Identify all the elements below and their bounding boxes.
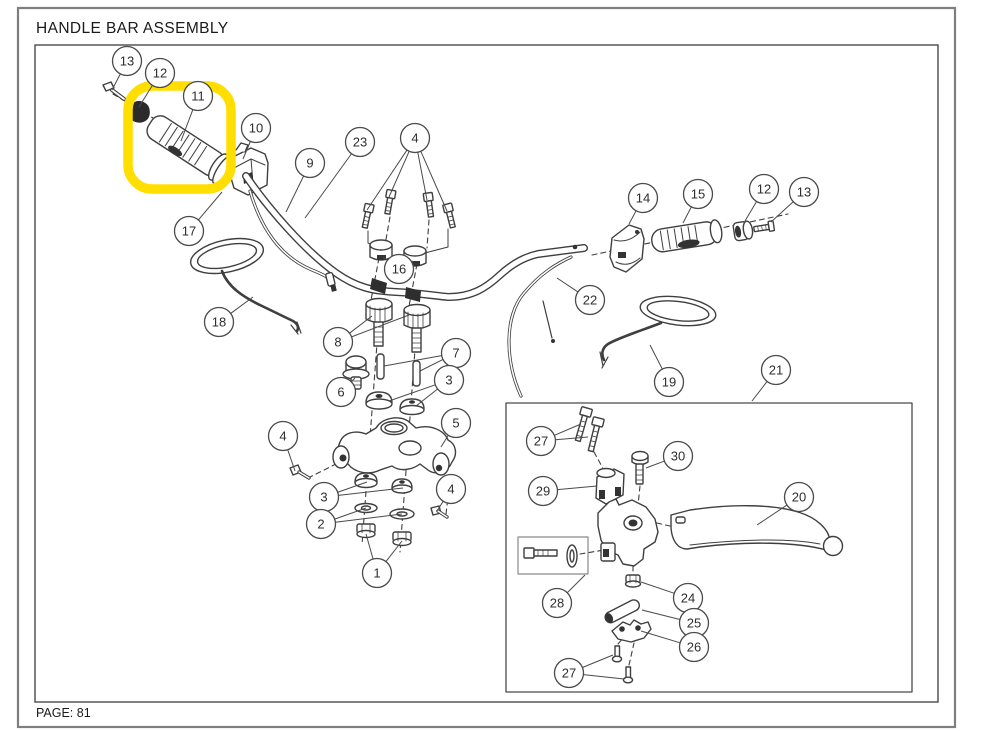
left-end-screw-part bbox=[103, 82, 124, 99]
svg-text:27: 27 bbox=[534, 434, 548, 449]
svg-text:12: 12 bbox=[757, 182, 771, 197]
callout-leader-line bbox=[198, 192, 222, 220]
callout-2[interactable]: 2 bbox=[307, 510, 336, 539]
callout-20[interactable]: 20 bbox=[785, 483, 814, 512]
callout-leader-line bbox=[335, 508, 366, 519]
callout-15[interactable]: 15 bbox=[684, 180, 713, 209]
callout-3[interactable]: 3 bbox=[310, 483, 339, 512]
washers bbox=[355, 504, 414, 520]
svg-text:29: 29 bbox=[536, 484, 550, 499]
callout-layer: 1312111092341617188763543241141512132219… bbox=[112, 47, 819, 688]
callout-12[interactable]: 12 bbox=[750, 175, 779, 204]
svg-text:10: 10 bbox=[249, 121, 263, 136]
callout-leader-line bbox=[683, 207, 691, 223]
callout-leader-line bbox=[771, 202, 793, 222]
svg-text:21: 21 bbox=[769, 363, 783, 378]
callout-leader-line bbox=[286, 176, 304, 212]
right-switch-housing-part bbox=[610, 225, 644, 272]
callout-1[interactable]: 1 bbox=[363, 559, 392, 588]
svg-text:4: 4 bbox=[279, 429, 286, 444]
svg-text:6: 6 bbox=[337, 385, 344, 400]
svg-text:4: 4 bbox=[411, 131, 418, 146]
callout-leader-line bbox=[231, 297, 253, 313]
svg-text:5: 5 bbox=[452, 416, 459, 431]
svg-text:15: 15 bbox=[691, 187, 705, 202]
callout-leader-line bbox=[567, 575, 585, 593]
right-grip-part bbox=[650, 219, 723, 253]
callout-16[interactable]: 16 bbox=[385, 255, 414, 284]
callout-13[interactable]: 13 bbox=[790, 178, 819, 207]
callout-leader-line bbox=[646, 461, 664, 468]
callout-leader-line bbox=[641, 631, 680, 643]
callout-leader-line bbox=[752, 381, 767, 401]
svg-text:17: 17 bbox=[182, 224, 196, 239]
svg-text:20: 20 bbox=[792, 490, 806, 505]
pivot-nut bbox=[626, 575, 641, 587]
callout-leader-line bbox=[418, 152, 427, 200]
clutch-cable-part bbox=[509, 257, 571, 396]
holder-bolts-top bbox=[573, 407, 605, 453]
right-mirror-part bbox=[600, 292, 717, 368]
svg-text:24: 24 bbox=[681, 591, 695, 606]
page-title: HANDLE BAR ASSEMBLY bbox=[36, 20, 229, 37]
svg-text:30: 30 bbox=[671, 449, 685, 464]
svg-text:4: 4 bbox=[447, 482, 454, 497]
callout-leader-line bbox=[557, 486, 597, 490]
brake-lever-part bbox=[671, 506, 843, 556]
callout-21[interactable]: 21 bbox=[762, 356, 791, 385]
callout-29[interactable]: 29 bbox=[529, 477, 558, 506]
callout-7[interactable]: 7 bbox=[442, 339, 471, 368]
callout-leader-line bbox=[416, 389, 438, 406]
callout-leader-line bbox=[557, 278, 578, 292]
diagram-svg: HANDLE BAR ASSEMBLY PAGE: 81 bbox=[0, 0, 982, 731]
grip-tape-band bbox=[405, 287, 421, 302]
callout-leader-line bbox=[650, 345, 662, 369]
callout-6[interactable]: 6 bbox=[327, 378, 356, 407]
upper-holder-bracket bbox=[333, 418, 455, 475]
callout-leader-line bbox=[583, 675, 624, 679]
svg-text:9: 9 bbox=[306, 156, 313, 171]
right-end-cap-part bbox=[733, 220, 754, 241]
control-cable-part bbox=[250, 191, 337, 292]
rubber-mounts-upper bbox=[366, 392, 424, 415]
pins bbox=[377, 354, 420, 386]
callout-leader-line bbox=[389, 151, 409, 197]
callout-leader-line bbox=[555, 437, 588, 440]
lever-pivot-bolt bbox=[632, 452, 648, 485]
callout-18[interactable]: 18 bbox=[205, 308, 234, 337]
callout-leader-line bbox=[642, 610, 680, 619]
svg-text:25: 25 bbox=[687, 616, 701, 631]
flange-nuts bbox=[357, 524, 411, 546]
svg-text:14: 14 bbox=[636, 191, 650, 206]
svg-text:12: 12 bbox=[153, 66, 167, 81]
callout-leader-line bbox=[582, 655, 613, 668]
svg-text:27: 27 bbox=[562, 666, 576, 681]
svg-text:8: 8 bbox=[334, 335, 341, 350]
handlebar-holders bbox=[366, 299, 430, 353]
svg-text:7: 7 bbox=[452, 346, 459, 361]
callout-27[interactable]: 27 bbox=[527, 427, 556, 456]
parts-catalog-page: HANDLE BAR ASSEMBLY PAGE: 81 bbox=[0, 0, 982, 731]
callout-27[interactable]: 27 bbox=[555, 659, 584, 688]
svg-text:2: 2 bbox=[317, 517, 324, 532]
svg-text:26: 26 bbox=[687, 640, 701, 655]
lever-bracket-body bbox=[598, 499, 658, 566]
svg-text:3: 3 bbox=[445, 373, 452, 388]
callout-3[interactable]: 3 bbox=[435, 366, 464, 395]
svg-text:19: 19 bbox=[662, 375, 676, 390]
callout-24[interactable]: 24 bbox=[674, 584, 703, 613]
svg-text:16: 16 bbox=[392, 262, 406, 277]
svg-text:1: 1 bbox=[373, 566, 380, 581]
svg-text:18: 18 bbox=[212, 315, 226, 330]
callout-17[interactable]: 17 bbox=[175, 217, 204, 246]
detail-box-28 bbox=[518, 537, 588, 574]
svg-text:3: 3 bbox=[320, 490, 327, 505]
callout-5[interactable]: 5 bbox=[442, 409, 471, 438]
callout-4[interactable]: 4 bbox=[401, 124, 430, 153]
page-number: PAGE: 81 bbox=[36, 706, 91, 720]
callout-22[interactable]: 22 bbox=[576, 286, 605, 315]
callout-12[interactable]: 12 bbox=[146, 59, 175, 88]
callout-28[interactable]: 28 bbox=[543, 589, 572, 618]
callout-11[interactable]: 11 bbox=[184, 82, 213, 111]
callout-4[interactable]: 4 bbox=[269, 422, 298, 451]
lever-holder-clamp bbox=[596, 469, 624, 505]
callout-19[interactable]: 19 bbox=[655, 368, 684, 397]
callout-leader-line bbox=[745, 201, 757, 221]
cable-bracket bbox=[612, 620, 651, 642]
callout-10[interactable]: 10 bbox=[242, 114, 271, 143]
svg-text:11: 11 bbox=[191, 89, 205, 104]
callout-14[interactable]: 14 bbox=[629, 184, 658, 213]
callout-leader-line bbox=[112, 74, 120, 90]
svg-text:13: 13 bbox=[120, 54, 134, 69]
svg-text:23: 23 bbox=[353, 135, 367, 150]
svg-text:13: 13 bbox=[797, 185, 811, 200]
callout-leader-line bbox=[629, 211, 636, 224]
callout-leader-line bbox=[641, 582, 674, 593]
callout-13[interactable]: 13 bbox=[113, 47, 142, 76]
callout-30[interactable]: 30 bbox=[664, 442, 693, 471]
svg-text:22: 22 bbox=[583, 293, 597, 308]
callout-4[interactable]: 4 bbox=[437, 475, 466, 504]
callout-26[interactable]: 26 bbox=[680, 633, 709, 662]
right-end-screw-part bbox=[753, 221, 774, 234]
callout-9[interactable]: 9 bbox=[296, 149, 325, 178]
callout-8[interactable]: 8 bbox=[324, 328, 353, 357]
svg-text:28: 28 bbox=[550, 596, 564, 611]
callout-23[interactable]: 23 bbox=[346, 128, 375, 157]
